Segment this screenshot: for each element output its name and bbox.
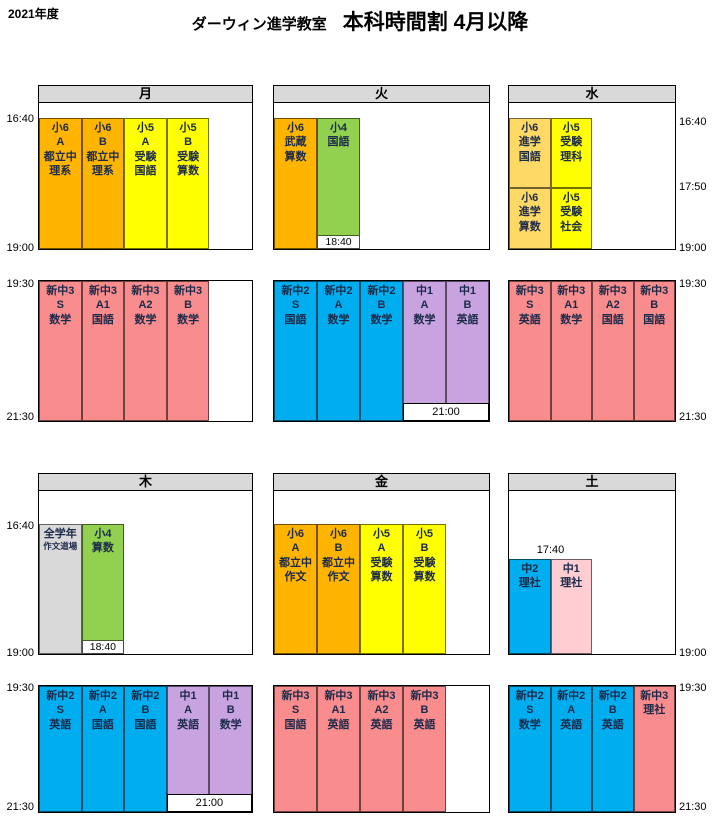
class-cell: 小6 B 都立中 理系 <box>82 118 125 249</box>
day-header-thu: 木 <box>39 474 252 491</box>
class-cell: 新中3 B 数学 <box>167 281 210 421</box>
day-header-fri: 金 <box>274 474 489 491</box>
day-block-thu-afternoon: 木 全学年作文道場 小4 算数 18:40 <box>38 473 253 655</box>
class-cell: 小5 B 受験 算数 <box>167 118 210 249</box>
class-cell: 新中2 B 英語 <box>592 686 634 812</box>
class-cell: 新中2 B 数学 <box>360 281 403 421</box>
time-label: 21:30 <box>0 800 34 814</box>
class-cell: 新中3 A2 国語 <box>592 281 634 421</box>
day-block-fri-evening: 新中3 S 国語 新中3 A1 英語 新中3 A2 英語 新中3 B 英語 <box>273 685 490 813</box>
class-cell: 小6 進学 国語 <box>509 118 551 188</box>
class-cell: 小5 A 受験 国語 <box>124 118 167 249</box>
class-cell: 中1 A 数学 <box>403 281 446 404</box>
timetable-page: 2021年度 ダーウィン進学教室本科時間割 4月以降 16:40 19:00 1… <box>0 0 720 834</box>
class-cell: 新中2 S 数学 <box>509 686 551 812</box>
class-column-early-end: 小4 算数 18:40 <box>82 524 125 654</box>
day-block-mon-evening: 新中3 S 数学 新中3 A1 国語 新中3 A2 数学 新中3 B 数学 <box>38 280 253 422</box>
class-cell: 新中3 S 英語 <box>509 281 551 421</box>
day-header-tue: 火 <box>274 86 489 103</box>
day-block-sat-afternoon: 土 17:40 中2 理社 中1 理社 <box>508 473 676 655</box>
class-cell: 新中3 A1 英語 <box>317 686 360 812</box>
end-time-label: 18:40 <box>317 236 360 249</box>
class-cell: 新中3 S 国語 <box>274 686 317 812</box>
time-label: 19:30 <box>0 681 34 695</box>
page-title: ダーウィン進学教室本科時間割 4月以降 <box>0 6 720 36</box>
class-cell: 新中2 B 国語 <box>124 686 167 812</box>
day-block-sat-evening: 新中2 S 数学 新中2 A 英語 新中2 B 英語 新中3 理社 <box>508 685 676 813</box>
class-cell: 新中3 B 国語 <box>634 281 676 421</box>
time-label: 21:30 <box>679 410 719 424</box>
time-label: 19:30 <box>0 277 34 291</box>
class-cell: 新中3 理社 <box>634 686 676 812</box>
time-label: 21:30 <box>0 410 34 424</box>
class-cell: 小6 武蔵 算数 <box>274 118 317 249</box>
timetable-heading: 本科時間割 4月以降 <box>343 11 529 34</box>
day-block-fri-afternoon: 金 小6 A 都立中 作文 小6 B 都立中 作文 小5 A 受験 算数 小5 … <box>273 473 490 655</box>
class-cell: 小6 A 都立中 作文 <box>274 524 317 654</box>
time-label: 16:40 <box>0 519 34 533</box>
time-label: 17:50 <box>679 180 719 194</box>
day-block-tue-evening: 新中2 S 国語 新中2 A 数学 新中2 B 数学 中1 A 数学 中1 B … <box>273 280 490 422</box>
class-cell: 小4 算数 <box>82 524 125 641</box>
class-cell: 新中2 S 英語 <box>39 686 82 812</box>
time-label: 19:00 <box>679 646 719 660</box>
class-cell: 新中2 A 英語 <box>551 686 593 812</box>
class-cell: 小5 受験 社会 <box>551 188 593 249</box>
class-cell: 小6 B 都立中 作文 <box>317 524 360 654</box>
class-cell: 全学年作文道場 <box>39 524 82 654</box>
day-header-wed: 水 <box>509 86 675 103</box>
class-cell: 小5 B 受験 算数 <box>403 524 446 654</box>
class-cell: 新中3 A1 国語 <box>82 281 125 421</box>
day-block-thu-evening: 新中2 S 英語 新中2 A 国語 新中2 B 国語 中1 A 英語 中1 B … <box>38 685 253 813</box>
day-block-wed-evening: 新中3 S 英語 新中3 A1 数学 新中3 A2 国語 新中3 B 国語 <box>508 280 676 422</box>
class-cell: 小5 A 受験 算数 <box>360 524 403 654</box>
end-time-label: 21:00 <box>403 403 489 421</box>
class-cell: 小6 A 都立中 理系 <box>39 118 82 249</box>
day-header-mon: 月 <box>39 86 252 103</box>
class-cell: 新中2 S 国語 <box>274 281 317 421</box>
class-cell: 中1 A 英語 <box>167 686 210 795</box>
class-cell: 新中3 A2 英語 <box>360 686 403 812</box>
class-cell: 小5 受験 理科 <box>551 118 593 188</box>
time-label: 16:40 <box>679 115 719 129</box>
time-label: 19:30 <box>679 277 719 291</box>
day-header-sat: 土 <box>509 474 675 491</box>
day-block-wed-afternoon: 水 小6 進学 国語 小6 進学 算数 小5 受験 理科 小5 受験 社会 <box>508 85 676 250</box>
class-column-early-end: 小4 国語 18:40 <box>317 118 360 249</box>
class-cell-line2: 作文道場 <box>40 541 81 552</box>
time-label: 21:30 <box>679 800 719 814</box>
class-cell: 中1 理社 <box>551 559 593 654</box>
day-block-mon-afternoon: 月 小6 A 都立中 理系 小6 B 都立中 理系 小5 A 受験 国語 小5 … <box>38 85 253 250</box>
time-label: 19:00 <box>0 241 34 255</box>
class-cell: 新中3 A2 数学 <box>124 281 167 421</box>
class-cell: 中2 理社 <box>509 559 551 654</box>
day-block-tue-afternoon: 火 小6 武蔵 算数 小4 国語 18:40 <box>273 85 490 250</box>
school-name: ダーウィン進学教室 <box>192 16 327 33</box>
time-label: 19:00 <box>679 241 719 255</box>
class-cell: 小4 国語 <box>317 118 360 236</box>
class-cell: 新中3 S 数学 <box>39 281 82 421</box>
time-label: 19:30 <box>679 681 719 695</box>
time-label: 19:00 <box>0 646 34 660</box>
class-cell: 新中2 A 国語 <box>82 686 125 812</box>
class-cell: 中1 B 英語 <box>446 281 489 404</box>
class-cell: 新中3 B 英語 <box>403 686 446 812</box>
end-time-label: 21:00 <box>167 794 252 812</box>
class-cell: 小6 進学 算数 <box>509 188 551 249</box>
class-cell: 新中3 A1 数学 <box>551 281 593 421</box>
time-label: 16:40 <box>0 112 34 126</box>
class-cell: 中1 B 数学 <box>209 686 252 795</box>
class-cell-line1: 全学年 <box>44 528 77 540</box>
start-time-label: 17:40 <box>509 543 592 557</box>
end-time-label: 18:40 <box>82 641 125 654</box>
class-cell: 新中2 A 数学 <box>317 281 360 421</box>
